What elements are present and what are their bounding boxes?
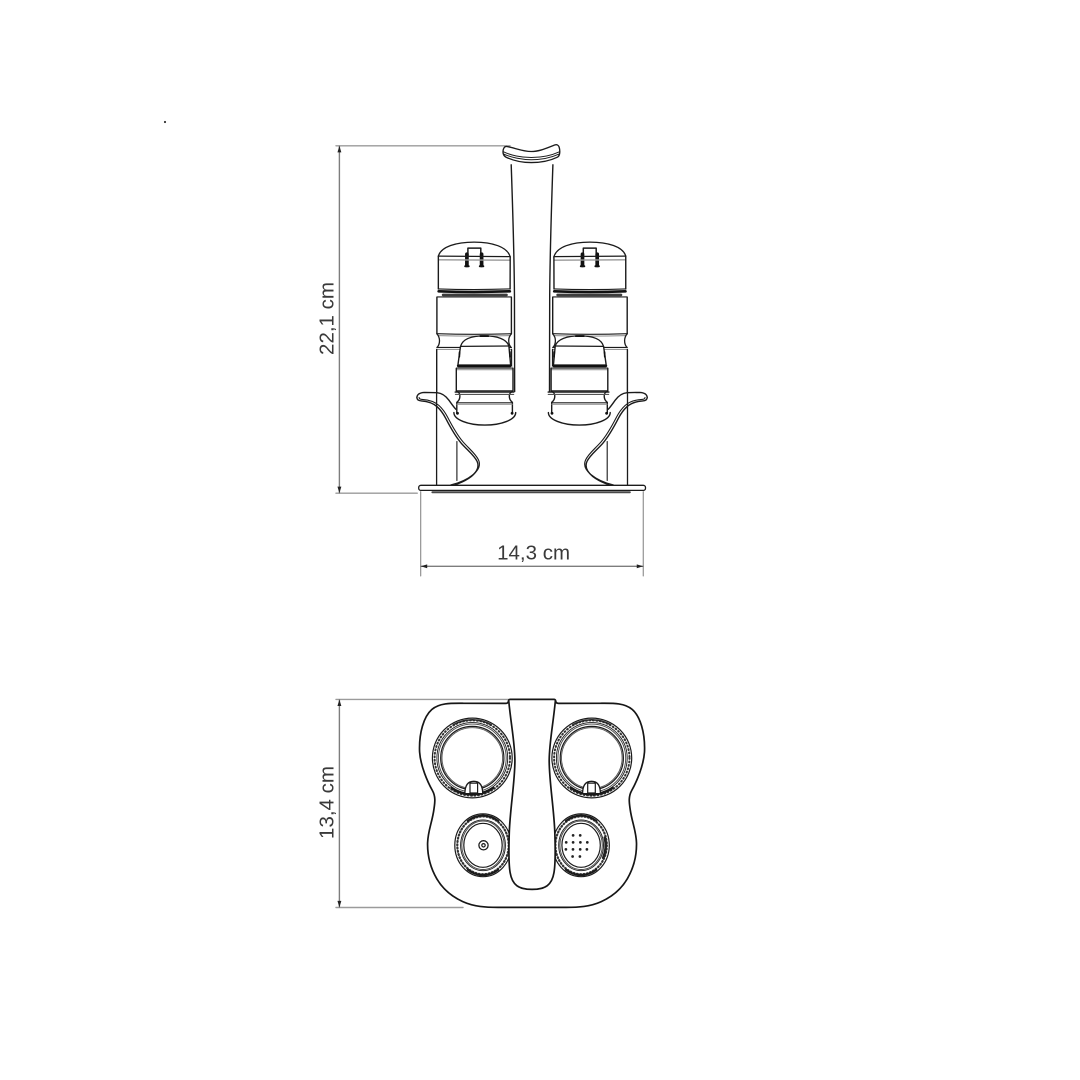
svg-text:14,3 cm: 14,3 cm <box>497 542 570 565</box>
svg-text:22,1 cm: 22,1 cm <box>316 282 339 355</box>
svg-text:13,4 cm: 13,4 cm <box>316 766 339 839</box>
